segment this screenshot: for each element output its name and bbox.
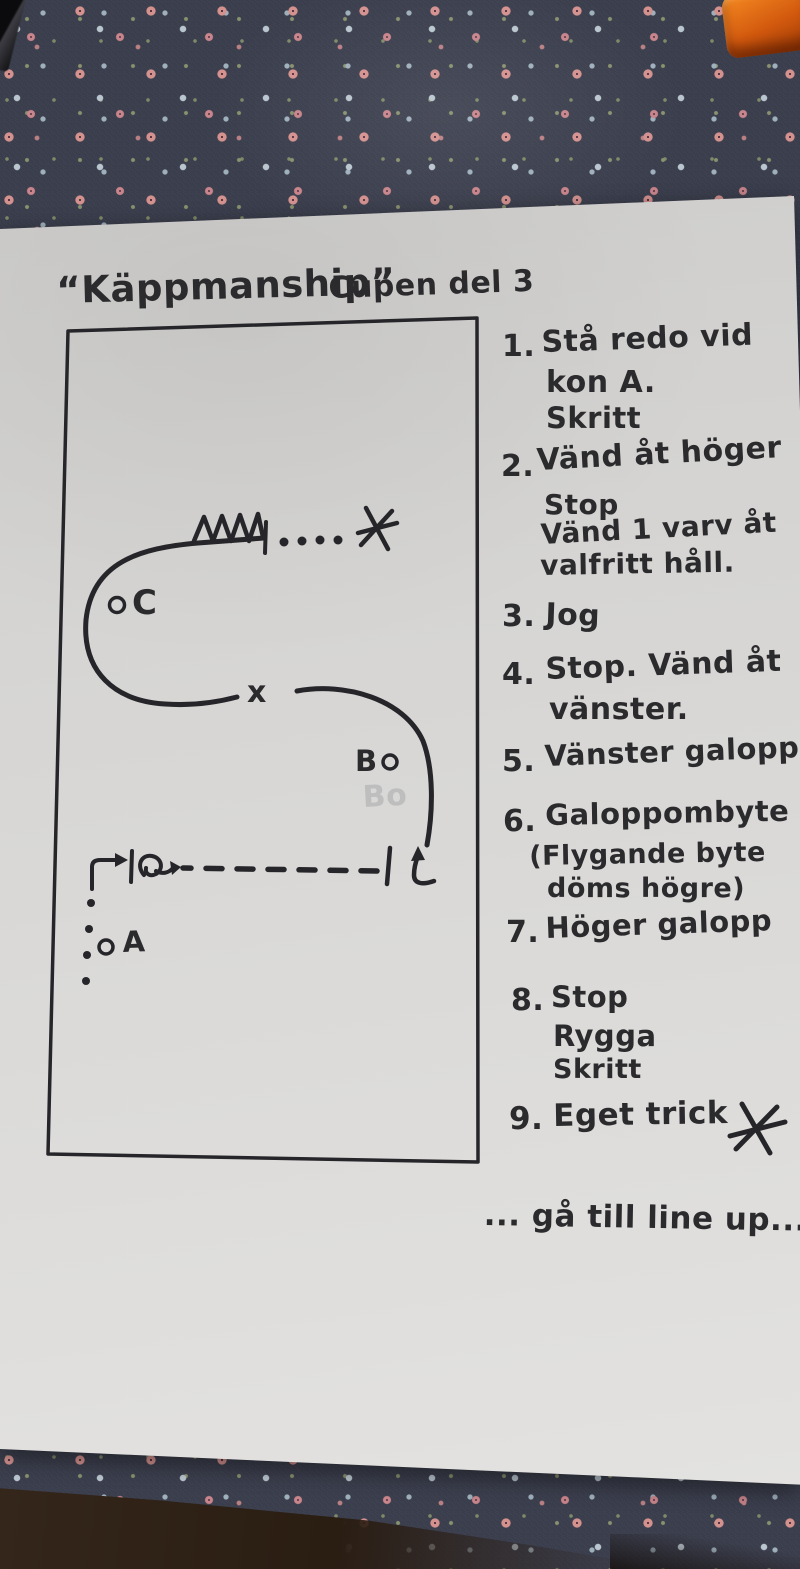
cone-a bbox=[99, 940, 113, 954]
instruction-1-line: kon A. bbox=[546, 368, 656, 398]
instruction-5-line: Vänster galopp bbox=[544, 733, 800, 771]
instruction-7-num: 7. bbox=[506, 918, 539, 948]
page-subtitle: Cupen del 3 bbox=[328, 267, 535, 304]
instruction-9-num: 9. bbox=[509, 1104, 543, 1135]
arena-outline bbox=[48, 318, 478, 1162]
photo-of-course-sheet: “Käppmanship” Cupen del 3 C B A x Bo 1. … bbox=[0, 0, 800, 1569]
cone-b bbox=[383, 755, 397, 769]
instruction-1-line: Stå redo vid bbox=[541, 321, 754, 358]
instruction-1-num: 1. bbox=[502, 332, 535, 362]
instruction-4-line: vänster. bbox=[549, 695, 689, 725]
instruction-5-num: 5. bbox=[502, 747, 535, 777]
instruction-6-line: döms högre) bbox=[547, 875, 745, 902]
instruction-6-line: Galoppombyte bbox=[545, 797, 790, 830]
instruction-8-line: Skritt bbox=[553, 1056, 642, 1083]
marker-b-label: B bbox=[355, 747, 378, 776]
marker-a-label: A bbox=[122, 927, 146, 957]
instruction-9-line: Eget trick bbox=[553, 1098, 728, 1132]
instruction-8-num: 8. bbox=[511, 986, 544, 1016]
instruction-4-line: Stop. Vänd åt bbox=[545, 647, 782, 685]
instruction-2-line: valfritt håll. bbox=[540, 549, 735, 580]
instruction-6-num: 6. bbox=[503, 807, 536, 837]
footer-note: ... gå till line up... bbox=[483, 1200, 800, 1237]
star-icon bbox=[358, 508, 397, 549]
instruction-2-num: 2. bbox=[501, 452, 534, 482]
instruction-3-num: 3. bbox=[502, 602, 535, 632]
pencil-ghost-label: Bo bbox=[362, 781, 408, 813]
instruction-7-line: Höger galopp bbox=[545, 906, 773, 943]
trick-star-icon bbox=[730, 1104, 785, 1153]
marker-x-label: x bbox=[247, 678, 267, 708]
marker-c-label: C bbox=[132, 586, 157, 620]
instruction-8-line: Rygga bbox=[553, 1022, 657, 1051]
start-turn-symbols bbox=[82, 851, 181, 985]
cone-c bbox=[110, 598, 125, 613]
instruction-4-num: 4. bbox=[502, 660, 535, 690]
instruction-3-line: Jog bbox=[545, 600, 601, 632]
instruction-8-line: Stop bbox=[551, 983, 628, 1012]
instruction-6-line: (Flygande byte bbox=[529, 839, 766, 870]
instruction-1-line: Skritt bbox=[546, 404, 641, 433]
